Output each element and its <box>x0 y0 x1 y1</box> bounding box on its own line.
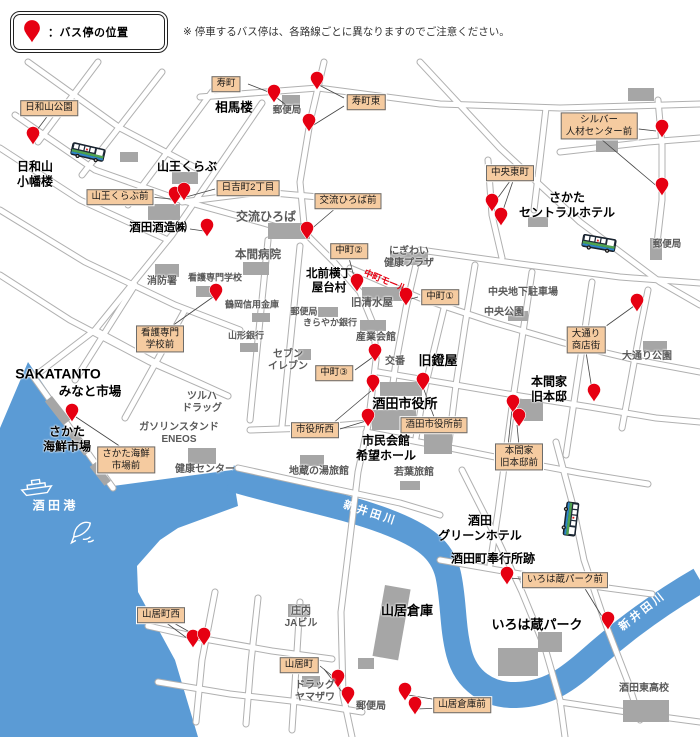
place-name: 市民会館 希望ホール <box>356 433 416 462</box>
poi-name: 健康センター <box>175 464 235 476</box>
poi-name: 郵便局 <box>356 701 386 713</box>
bus-stop-label: 山居倉庫前 <box>433 697 491 713</box>
bus-stop-label: 中町③ <box>315 365 353 381</box>
place-name: さかた セントラルホテル <box>519 190 615 219</box>
poi-name: 郵便局 <box>290 307 317 318</box>
bus-stop-label: 寿町東 <box>347 94 386 110</box>
legend-label: ：バス停の位置 <box>48 24 129 40</box>
poi-name: 鶴岡信用金庫 <box>225 300 279 311</box>
bus-stop-label: シルバー 人材センター前 <box>561 112 638 139</box>
poi-name: 若葉旅館 <box>394 467 434 479</box>
place-name: 山居倉庫 <box>381 603 433 619</box>
poi-name: ツルハ ドラッグ <box>182 391 222 415</box>
place-name: いろは蔵パーク <box>491 617 582 633</box>
poi-name: 郵便局 <box>653 239 682 251</box>
river-name-niida-1: 新井田川 <box>341 499 398 529</box>
poi-name: 看護専門学校 <box>188 273 242 284</box>
bus-stop-label: 日吉町2丁目 <box>217 180 280 196</box>
place-name: SAKATANTO <box>15 365 101 382</box>
poi-name: 旧清水屋 <box>351 297 393 310</box>
bus-stop-label: さかた海鮮 市場前 <box>97 446 155 473</box>
place-name: 酒田 グリーンホテル <box>438 513 521 542</box>
place-name: 北前横丁 屋台村 <box>306 267 352 295</box>
poi-name: ガソリンスタンド ENEOS <box>139 422 219 446</box>
street-name-nakamachi-mall: 中町モール <box>362 267 408 294</box>
bus-stop-map: 日和山公園寿町寿町東日吉町2丁目交流ひろば前山王くらぶ前シルバー 人材センター前… <box>0 0 700 737</box>
water-name-sakata-port: 酒 田 港 <box>33 499 76 514</box>
poi-name: セブン イレブン <box>268 349 308 373</box>
legend-box: ：バス停の位置 <box>10 11 168 53</box>
place-name: 本間家 旧本邸 <box>531 374 567 403</box>
bus-stop-label: 本間家 旧本邸前 <box>495 443 543 470</box>
poi-name: 地蔵の湯旅館 <box>289 466 349 478</box>
poi-name: 中央地下駐車場 <box>488 287 558 299</box>
bus-stop-label: 看護専門 学校前 <box>136 325 184 352</box>
poi-name: ドラッグ ヤマザワ <box>295 680 335 704</box>
bus-stop-label: 日和山公園 <box>20 100 78 116</box>
poi-name: 酒田東高校 <box>619 683 669 695</box>
poi-name: 交番 <box>385 356 405 368</box>
poi-name: 庄内 JAビル <box>285 606 318 630</box>
bus-stop-label: 中町② <box>330 243 368 259</box>
poi-name: 消防署 <box>147 276 177 288</box>
place-name: みなと市場 <box>59 384 122 399</box>
bus-stop-label: 市役所西 <box>291 422 339 438</box>
poi-name: 産業会館 <box>356 332 396 344</box>
place-name: 酒田市役所 <box>372 396 437 412</box>
bus-stop-label: いろは蔵パーク前 <box>522 572 608 588</box>
poi-name: 大通り公園 <box>622 351 672 363</box>
bus-stop-label: 寿町 <box>211 76 240 92</box>
bus-stop-label: 中央東町 <box>486 165 534 181</box>
place-name: 日和山 小幡楼 <box>17 159 53 188</box>
bus-stop-label: 酒田市役所前 <box>400 417 467 433</box>
bus-stop-label: 山居町西 <box>137 607 185 623</box>
bus-stop-label: 中町① <box>421 289 459 305</box>
poi-name: 山形銀行 <box>228 331 264 342</box>
poi-name: 交流ひろば <box>236 210 296 225</box>
place-name: さかた 海鮮市場 <box>43 424 91 453</box>
bus-stop-label: 山王くらぶ前 <box>86 189 153 205</box>
river-name-niida-2: 新井田川 <box>617 589 669 634</box>
map-labels: 日和山公園寿町寿町東日吉町2丁目交流ひろば前山王くらぶ前シルバー 人材センター前… <box>0 0 700 737</box>
bus-stop-pin-icon <box>22 19 42 45</box>
place-name: 酒田町奉行所跡 <box>451 552 535 567</box>
place-name: 酒田酒造㈱ <box>129 221 187 235</box>
place-name: 旧鐙屋 <box>418 353 457 369</box>
poi-name: にぎわい 健康プラザ <box>384 246 434 270</box>
poi-name: 中央公園 <box>484 307 524 319</box>
legend-note: ※ 停車するバス停は、各路線ごとに異なりますのでご注意ください。 <box>183 24 510 39</box>
poi-name: 郵便局 <box>273 105 302 117</box>
poi-name: 本間病院 <box>235 248 281 262</box>
place-name: 山王くらぶ <box>157 160 217 175</box>
place-name: 相馬楼 <box>215 100 253 115</box>
poi-name: きらやか銀行 <box>303 318 357 329</box>
bus-stop-label: 交流ひろば前 <box>314 193 381 209</box>
bus-stop-label: 山居町 <box>280 657 319 673</box>
bus-stop-label: 大通り 商店街 <box>567 326 606 353</box>
